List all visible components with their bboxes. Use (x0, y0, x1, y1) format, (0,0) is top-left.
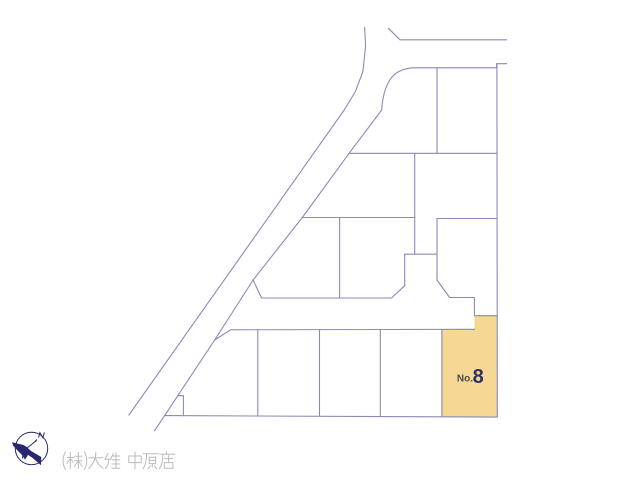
svg-text:No.: No. (457, 374, 473, 385)
svg-text:8: 8 (473, 366, 484, 388)
